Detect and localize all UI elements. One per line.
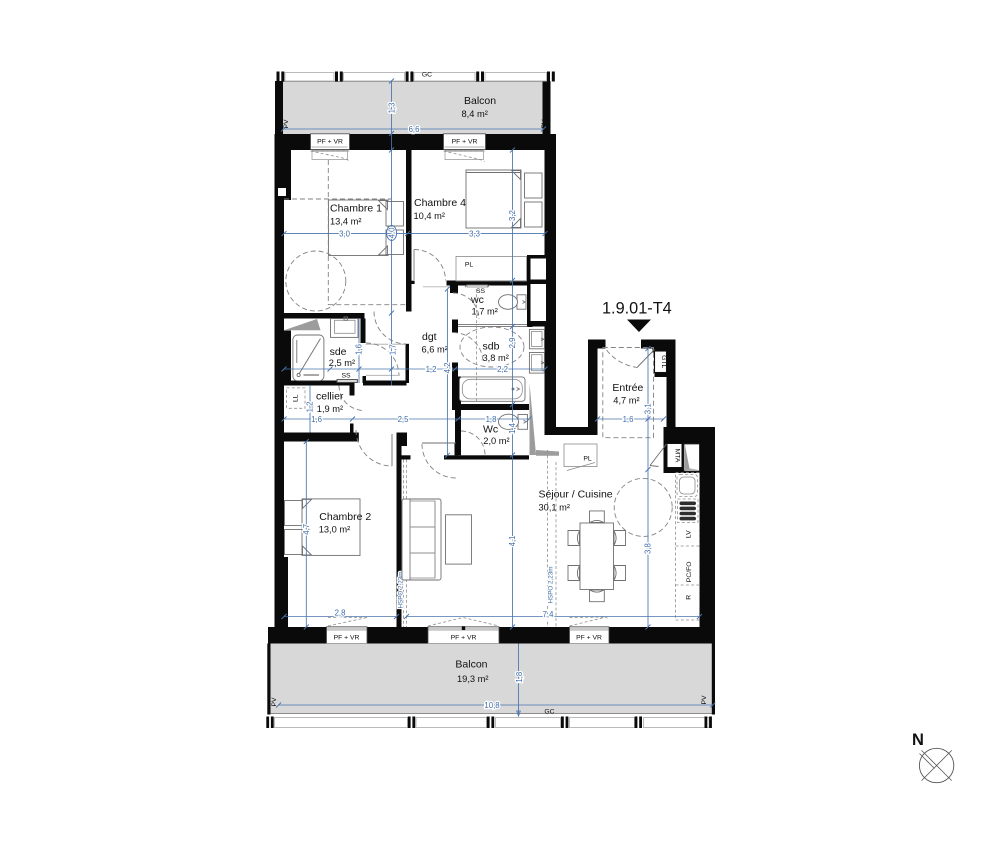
svg-text:1,6: 1,6 xyxy=(355,344,364,355)
svg-text:Chambre 2: Chambre 2 xyxy=(319,511,371,523)
svg-text:3,8 m²: 3,8 m² xyxy=(483,353,509,363)
svg-text:1,3: 1,3 xyxy=(387,103,396,114)
svg-text:Balcon: Balcon xyxy=(464,95,496,107)
svg-text:Chambre 1: Chambre 1 xyxy=(330,203,382,215)
svg-text:2,8: 2,8 xyxy=(335,608,346,617)
svg-text:PL: PL xyxy=(465,262,474,269)
svg-text:PF + VR: PF + VR xyxy=(452,139,478,146)
svg-text:2,5: 2,5 xyxy=(398,415,410,424)
svg-text:LL: LL xyxy=(293,394,300,402)
svg-text:1,7 m²: 1,7 m² xyxy=(472,307,498,317)
svg-text:PV: PV xyxy=(283,119,290,129)
svg-text:MTA: MTA xyxy=(674,449,681,463)
svg-text:1,2: 1,2 xyxy=(426,365,437,374)
svg-text:1,6: 1,6 xyxy=(311,415,322,424)
svg-text:GC: GC xyxy=(422,72,432,79)
svg-text:13,4 m²: 13,4 m² xyxy=(330,217,362,227)
svg-text:GC: GC xyxy=(544,709,554,716)
svg-text:4,0: 4,0 xyxy=(387,227,396,239)
svg-text:sde: sde xyxy=(330,346,347,358)
svg-text:Balcon: Balcon xyxy=(455,659,487,671)
svg-text:Chambre 4: Chambre 4 xyxy=(414,197,466,209)
svg-text:PF + VR: PF + VR xyxy=(317,139,343,146)
svg-text:3,8: 3,8 xyxy=(644,543,653,554)
svg-text:8,4 m²: 8,4 m² xyxy=(462,109,488,119)
svg-text:PV: PV xyxy=(271,697,278,707)
svg-text:PF + VR: PF + VR xyxy=(334,635,360,642)
svg-text:PF + VR: PF + VR xyxy=(576,635,602,642)
svg-text:PV: PV xyxy=(701,695,708,705)
svg-text:Entrée: Entrée xyxy=(612,382,643,394)
svg-text:13,0 m²: 13,0 m² xyxy=(319,525,351,535)
svg-text:19,3 m²: 19,3 m² xyxy=(457,674,489,684)
svg-text:1.9.01-T4: 1.9.01-T4 xyxy=(602,300,672,318)
svg-text:2,5 m²: 2,5 m² xyxy=(329,358,355,368)
svg-text:PV: PV xyxy=(541,119,548,129)
svg-text:wc: wc xyxy=(470,294,484,306)
svg-text:3,3: 3,3 xyxy=(469,229,480,238)
svg-text:4,1: 4,1 xyxy=(508,535,517,546)
svg-text:cellier: cellier xyxy=(316,391,344,403)
svg-text:6,6 m²: 6,6 m² xyxy=(422,345,448,355)
svg-text:30,1 m²: 30,1 m² xyxy=(539,503,571,513)
svg-text:N: N xyxy=(912,731,924,749)
svg-text:10,4 m²: 10,4 m² xyxy=(414,211,446,221)
svg-text:7,4: 7,4 xyxy=(543,610,555,619)
svg-text:Wc: Wc xyxy=(483,424,498,436)
svg-text:1,4: 1,4 xyxy=(508,422,517,434)
svg-text:4,7 m²: 4,7 m² xyxy=(613,396,639,406)
svg-text:PC/FO: PC/FO xyxy=(686,561,693,582)
svg-text:GTL: GTL xyxy=(660,355,667,368)
svg-text:HSPO 2,23m: HSPO 2,23m xyxy=(548,566,555,603)
svg-text:sdb: sdb xyxy=(483,341,500,353)
svg-text:10,8: 10,8 xyxy=(484,701,499,710)
svg-text:LV: LV xyxy=(686,530,693,538)
svg-text:6,6: 6,6 xyxy=(409,125,420,134)
svg-text:R: R xyxy=(686,595,693,600)
svg-text:3,0: 3,0 xyxy=(339,229,351,238)
svg-text:1,9 m²: 1,9 m² xyxy=(317,404,343,414)
svg-text:dgt: dgt xyxy=(422,331,437,343)
svg-text:Séjour / Cuisine: Séjour / Cuisine xyxy=(539,489,613,501)
svg-text:1,8: 1,8 xyxy=(515,672,524,683)
svg-text:1,7: 1,7 xyxy=(389,344,398,355)
svg-text:2,9: 2,9 xyxy=(508,338,517,349)
svg-text:1,8: 1,8 xyxy=(486,415,497,424)
svg-text:2,0 m²: 2,0 m² xyxy=(483,436,509,446)
svg-text:SS: SS xyxy=(341,373,351,380)
svg-text:4,2: 4,2 xyxy=(443,363,452,374)
svg-text:1,2: 1,2 xyxy=(306,402,315,413)
svg-text:PF + VR: PF + VR xyxy=(451,635,477,642)
svg-text:1,6: 1,6 xyxy=(623,415,634,424)
svg-text:PL: PL xyxy=(583,456,592,463)
svg-text:3,2: 3,2 xyxy=(508,210,517,221)
svg-text:4,7: 4,7 xyxy=(302,524,311,535)
svg-text:3,1: 3,1 xyxy=(644,403,653,414)
svg-text:2,2: 2,2 xyxy=(497,365,508,374)
